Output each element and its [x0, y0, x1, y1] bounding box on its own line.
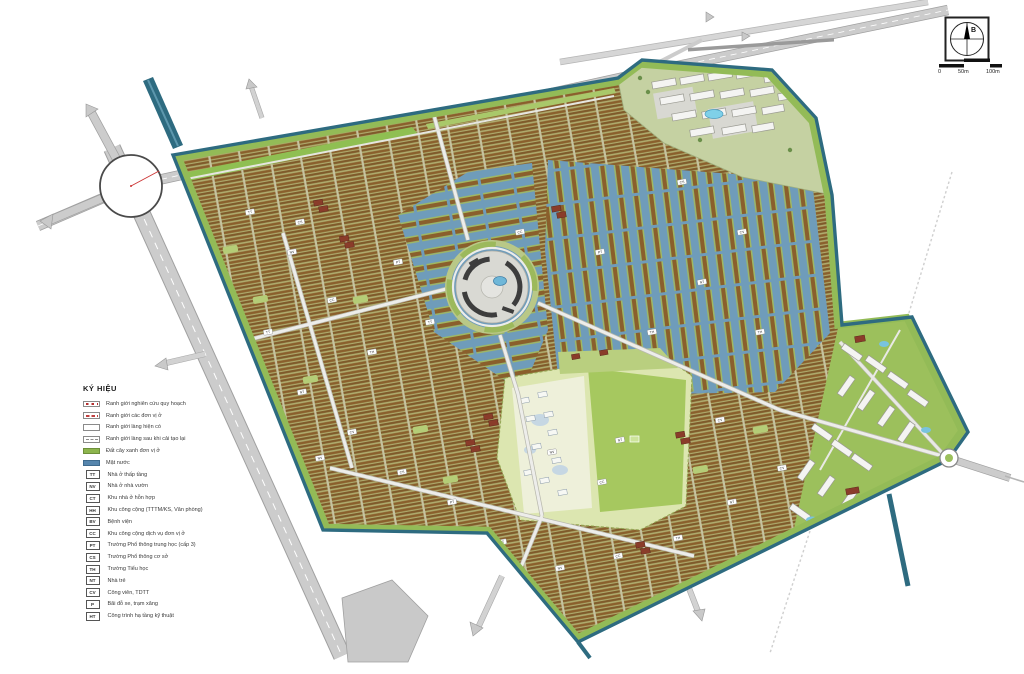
legend-rows: Ranh giới nghiên cứu quy hoạchRanh giới …: [83, 398, 273, 622]
legend-item: THTrường Tiểu học: [83, 563, 273, 575]
legend-item-label: Bãi đỗ xe, trạm xăng: [108, 601, 158, 607]
legend-item: Ranh giới làng sau khi cải tạo lại: [83, 433, 273, 445]
legend-item: CVCông viên, TDTT: [83, 587, 273, 599]
legend-item-label: Khu nhà ở hỗn hợp: [108, 495, 156, 501]
legend-code-box: HH: [86, 506, 100, 515]
legend-item-label: Ranh giới nghiên cứu quy hoạch: [106, 401, 186, 407]
legend-code-box: HT: [86, 612, 100, 621]
legend-title: KÝ HIỆU: [83, 384, 273, 393]
legend-swatch-dashed-box: [83, 436, 100, 443]
legend-item-label: Nhà ở thấp tầng: [108, 472, 148, 478]
master-plan-page: TTNVCCTHNTCVCSPTTTNVCCTHNTCVCSPTTTNVCCTH…: [0, 0, 1024, 674]
svg-text:PT: PT: [598, 250, 603, 255]
legend-item-label: Khu công cộng (TTTM/KS, Văn phòng): [108, 507, 203, 513]
legend-item: NVNhà ở nhà vườn: [83, 481, 273, 493]
planned-corridor-dashed: [770, 531, 810, 653]
legend-swatch-blue-fill: [83, 460, 100, 467]
legend-item: TTNhà ở thấp tầng: [83, 469, 273, 481]
legend-item: NTNhà trẻ: [83, 575, 273, 587]
legend-code-box: CS: [86, 553, 100, 562]
swimming-pool: [705, 110, 723, 119]
roundabout-northwest: [100, 155, 162, 217]
legend-item-label: Ranh giới làng hiện có: [106, 424, 161, 430]
legend-item: Ranh giới làng hiện có: [83, 422, 273, 434]
canal-spur-south: [889, 494, 908, 586]
scale-label-50: 50m: [958, 69, 969, 75]
legend-item: CCKhu công cộng dịch vụ đơn vị ở: [83, 528, 273, 540]
legend-item-label: Công trình hạ tầng kỹ thuật: [108, 613, 174, 619]
scale-label-100: 100m: [986, 69, 1000, 75]
legend-item: PBãi đỗ xe, trạm xăng: [83, 599, 273, 611]
planned-corridor-dashed: [908, 172, 952, 316]
legend-item-label: Khu công cộng dịch vụ đơn vị ở: [108, 531, 186, 537]
legend-item: Ranh giới nghiên cứu quy hoạch: [83, 398, 273, 410]
legend-item: CTKhu nhà ở hỗn hợp: [83, 492, 273, 504]
scale-label-0: 0: [938, 69, 941, 75]
legend-item-label: Trường Tiểu học: [108, 566, 149, 572]
legend-item-label: Mặt nước: [106, 460, 130, 466]
legend-swatch-green-fill: [83, 448, 100, 455]
legend-code-box: NV: [86, 482, 100, 491]
legend-code-box: NT: [86, 576, 100, 585]
legend-item: Mặt nước: [83, 457, 273, 469]
legend-code-box: CC: [86, 529, 100, 538]
plaza-pond: [494, 277, 507, 286]
legend-code-box: TT: [86, 470, 100, 479]
legend-item: BVBệnh viện: [83, 516, 273, 528]
svg-text:PT: PT: [450, 500, 455, 505]
legend-item: CSTrường Phổ thông cơ sở: [83, 551, 273, 563]
central-plaza: [445, 240, 539, 334]
legend-code-box: PT: [86, 541, 100, 550]
legend-item: HTCông trình hạ tầng kỹ thuật: [83, 610, 273, 622]
legend-item-label: Trường Phổ thông trung học (cấp 3): [108, 542, 196, 548]
legend-item: Ranh giới các đơn vị ở: [83, 410, 273, 422]
legend-item-label: Trường Phổ thông cơ sở: [108, 554, 169, 560]
legend-panel: KÝ HIỆU Ranh giới nghiên cứu quy hoạchRa…: [83, 384, 273, 622]
legend-swatch-red-dashes: [83, 412, 100, 419]
legend-swatch-plain-box: [83, 424, 100, 431]
svg-text:TT: TT: [248, 210, 253, 215]
legend-item: Đất cây xanh đơn vị ở: [83, 445, 273, 457]
legend-item-label: Ranh giới làng sau khi cải tạo lại: [106, 436, 185, 442]
legend-code-box: CT: [86, 494, 100, 503]
road-interchange-bulge: [342, 580, 428, 662]
legend-item: PTTrường Phổ thông trung học (cấp 3): [83, 540, 273, 552]
svg-text:NT: NT: [617, 438, 622, 443]
legend-item-label: Ranh giới các đơn vị ở: [106, 413, 162, 419]
svg-text:NT: NT: [299, 390, 304, 395]
legend-item-label: Nhà trẻ: [108, 578, 126, 584]
legend-code-box: BV: [86, 517, 100, 526]
legend-item-label: Công viên, TDTT: [108, 590, 150, 596]
legend-code-box: P: [86, 600, 100, 609]
legend-item-label: Nhà ở nhà vườn: [108, 483, 149, 489]
svg-text:PT: PT: [396, 260, 401, 265]
scale-bar-graphic: [938, 57, 1004, 69]
legend-item-label: Bệnh viện: [108, 519, 132, 525]
legend-swatch-red-squares: [83, 401, 100, 408]
svg-text:TT: TT: [428, 320, 433, 325]
legend-item-label: Đất cây xanh đơn vị ở: [106, 448, 160, 454]
north-label: B: [971, 27, 976, 34]
roundabout-east: [940, 449, 958, 467]
svg-text:TT: TT: [266, 330, 271, 335]
scale-bar: 0 50m 100m: [938, 56, 1004, 78]
svg-text:NT: NT: [699, 280, 704, 285]
legend-code-box: TH: [86, 565, 100, 574]
svg-text:NT: NT: [729, 500, 734, 505]
legend-code-box: CV: [86, 588, 100, 597]
legend-item: HHKhu công cộng (TTTM/KS, Văn phòng): [83, 504, 273, 516]
